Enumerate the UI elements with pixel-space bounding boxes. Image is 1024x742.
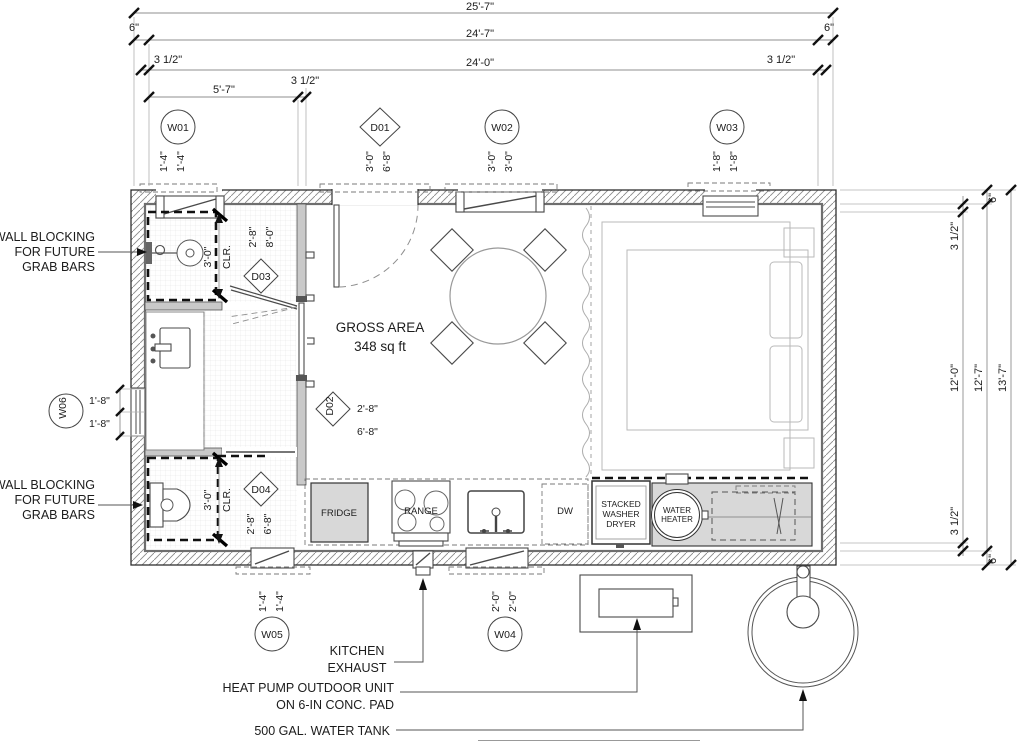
shower-clr-dim: 3'-0" — [202, 246, 214, 267]
tag-w02-dim-b: 3'-0" — [503, 151, 515, 172]
tag-w04-dim-b: 2'-0" — [507, 591, 519, 612]
tag-d01: D01 3'-0" 6'-8" — [360, 108, 400, 172]
right-dimensions: 3 1/2" 12'-0" 3 1/2" 12'-7" 6" 6" 13'-7" — [840, 185, 1016, 570]
tag-w05-dim-a: 1'-4" — [257, 591, 269, 612]
tag-w04: 2'-0" 2'-0" W04 — [488, 591, 522, 651]
shower-clr-label: CLR. — [221, 245, 233, 269]
blocking-note-line3: GRAB BARS — [22, 260, 95, 274]
tag-d01-dim-a: 3'-0" — [364, 151, 376, 172]
tag-d02-dim-a: 2'-8" — [357, 403, 378, 415]
dining-set — [431, 229, 566, 364]
tag-w03-label: W03 — [716, 122, 738, 134]
tag-w03-dim-b: 1'-8" — [728, 151, 740, 172]
dim-inner-width: 24'-7" — [466, 28, 494, 40]
tag-w05-dim-b: 1'-4" — [274, 591, 286, 612]
heat-pump-note-line1: HEAT PUMP OUTDOOR UNIT — [222, 681, 394, 695]
fridge: FRIDGE — [311, 483, 368, 542]
nightstand — [784, 438, 814, 468]
rdim-half-bot: 3 1/2" — [949, 507, 961, 535]
tag-w04-label: W04 — [494, 629, 516, 641]
tag-d01-dim-b: 6'-8" — [381, 151, 393, 172]
blocking-note2-line1: WALL BLOCKING — [0, 478, 95, 492]
tag-w03: W03 1'-8" 1'-8" — [710, 110, 744, 172]
washer-label-1: STACKED — [601, 499, 641, 509]
fridge-label: FRIDGE — [321, 508, 357, 519]
dishwasher-label: DW — [557, 506, 573, 517]
range: RANGE — [392, 481, 450, 546]
tag-d02-label: D02 — [324, 396, 336, 415]
dim-overall-width: 25'-7" — [466, 1, 494, 13]
tag-d02-dim-b: 6'-8" — [357, 426, 378, 438]
dim-bath-width: 5'-7" — [213, 84, 235, 96]
dim-bath-wall: 3 1/2" — [291, 75, 319, 87]
tag-w02-dim-a: 3'-0" — [486, 151, 498, 172]
pocket-door-d02 — [296, 296, 307, 381]
kitchen-exhaust-vent — [413, 551, 433, 575]
rdim-half-top: 3 1/2" — [949, 222, 961, 250]
dim-stud-width: 24'-0" — [466, 57, 494, 69]
rdim-overall: 13'-7" — [997, 364, 1009, 392]
washer-label-2: WASHER — [603, 509, 640, 519]
water-tank — [748, 566, 858, 687]
tag-d04-label: D04 — [251, 484, 270, 496]
blocking-note-line1: WALL BLOCKING — [0, 230, 95, 244]
tag-w06-dim-a: 1'-8" — [89, 395, 110, 407]
toilet-clr-dim: 3'-0" — [202, 489, 214, 510]
water-tank-note: 500 GAL. WATER TANK — [254, 689, 807, 738]
blocking-note-line2: FOR FUTURE — [14, 245, 95, 259]
tag-w02-label: W02 — [491, 122, 513, 134]
washer-label-3: DRYER — [606, 519, 636, 529]
window-w02 — [445, 184, 557, 212]
tag-w01-dim-a: 1'-4" — [158, 151, 170, 172]
rdim-stud: 12'-0" — [949, 364, 961, 392]
tag-w04-dim-a: 2'-0" — [490, 591, 502, 612]
water-heater-label-2: HEATER — [661, 515, 693, 524]
tag-d03-dim-b: 8'-0" — [264, 226, 276, 247]
kitchen-sink — [468, 491, 524, 533]
tag-d03-dim-a: 2'-8" — [247, 226, 259, 247]
tag-w03-dim-a: 1'-8" — [711, 151, 723, 172]
dim-half-left: 3 1/2" — [154, 54, 182, 66]
rdim-six-top: 6" — [987, 193, 999, 203]
tag-w05-label: W05 — [261, 629, 283, 641]
tag-d03-label: D03 — [251, 271, 270, 283]
tag-w05: 1'-4" 1'-4" W05 — [255, 591, 289, 651]
water-heater-label-1: WATER — [663, 506, 691, 515]
range-label: RANGE — [404, 506, 438, 517]
tag-w01: W01 1'-4" 1'-4" — [158, 110, 195, 172]
tag-w06: W06 1'-8" 1'-8" — [49, 394, 110, 430]
kitchen-exhaust-note: KITCHEN EXHAUST — [327, 578, 427, 675]
exhaust-note-line1: KITCHEN — [330, 644, 385, 658]
door-d01 — [320, 184, 430, 287]
dim-half-right: 3 1/2" — [767, 54, 795, 66]
nightstand — [784, 228, 814, 257]
blocking-note2-line2: FOR FUTURE — [14, 493, 95, 507]
dim-six-right: 6" — [824, 22, 834, 34]
tag-w02: W02 3'-0" 3'-0" — [485, 110, 519, 172]
tag-d01-label: D01 — [370, 122, 389, 134]
rdim-inner: 12'-7" — [973, 364, 985, 392]
water-tank-note-text: 500 GAL. WATER TANK — [254, 724, 390, 738]
blocking-note2-line3: GRAB BARS — [22, 508, 95, 522]
heat-pump-note-line2: ON 6-IN CONC. PAD — [276, 698, 394, 712]
gross-area-label: GROSS AREA — [336, 320, 425, 335]
vanity-sink — [146, 312, 204, 450]
bed — [602, 222, 814, 470]
dishwasher: DW — [542, 484, 588, 544]
exhaust-note-line2: EXHAUST — [327, 661, 386, 675]
wall-blocking-note-bottom: WALL BLOCKING FOR FUTURE GRAB BARS — [0, 478, 143, 522]
dining-table — [450, 248, 546, 344]
wall-blocking-note-top: WALL BLOCKING FOR FUTURE GRAB BARS — [0, 230, 147, 274]
floor-plan-sheet: FRIDGE RANGE DW STACKED WASHER DRYER — [0, 0, 1024, 742]
washer-dryer: STACKED WASHER DRYER — [592, 481, 650, 548]
rdim-six-bot: 6" — [987, 554, 999, 564]
gross-area-value: 348 sq ft — [354, 339, 406, 354]
tag-w06-dim-b: 1'-8" — [89, 418, 110, 430]
tag-d04-dim-b: 6'-8" — [262, 513, 274, 534]
dim-six-left: 6" — [129, 22, 139, 34]
tag-w01-dim-b: 1'-4" — [175, 151, 187, 172]
tag-d04-dim-a: 2'-8" — [245, 513, 257, 534]
toilet-clr-label: CLR. — [221, 488, 233, 512]
curtain-divider — [583, 206, 592, 477]
window-w06 — [116, 385, 146, 440]
tag-w01-label: W01 — [167, 122, 189, 134]
tag-d02: D02 2'-8" 6'-8" — [316, 392, 378, 438]
tag-w06-label: W06 — [57, 397, 69, 419]
floor-plan-canvas: FRIDGE RANGE DW STACKED WASHER DRYER — [0, 0, 1024, 742]
